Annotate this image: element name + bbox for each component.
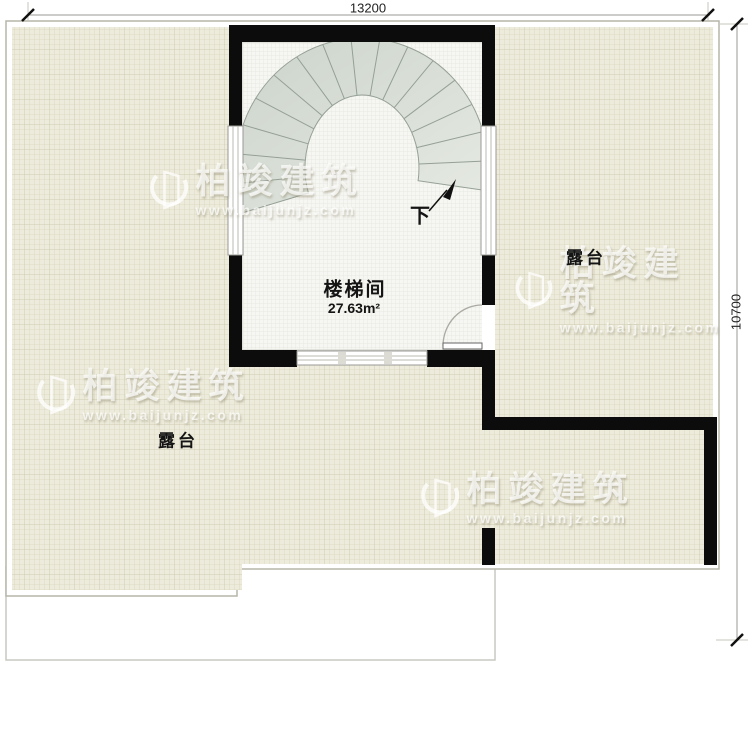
title-block: 三层平面图 1:100 本层建筑面积：32.96m² 层高：3.3m	[0, 662, 750, 740]
dimension-top-label: 13200	[350, 1, 386, 16]
stairwell-area-label: 27.63m²	[328, 300, 380, 316]
terrace-right-label: 露台	[566, 244, 606, 269]
terrace-left-label: 露台	[158, 427, 198, 452]
dimension-right-label: 10700	[729, 294, 744, 330]
floorplan-page: 柏竣建筑 www.baijunjz.com 柏竣建筑 www.baijunjz.…	[0, 0, 750, 740]
window-left	[228, 126, 243, 255]
stair-down-label: 下	[410, 200, 430, 229]
window-right	[481, 126, 496, 255]
floorplan-drawing	[0, 0, 750, 662]
window-bottom	[297, 351, 427, 365]
stairwell-label: 楼梯间	[323, 275, 386, 302]
